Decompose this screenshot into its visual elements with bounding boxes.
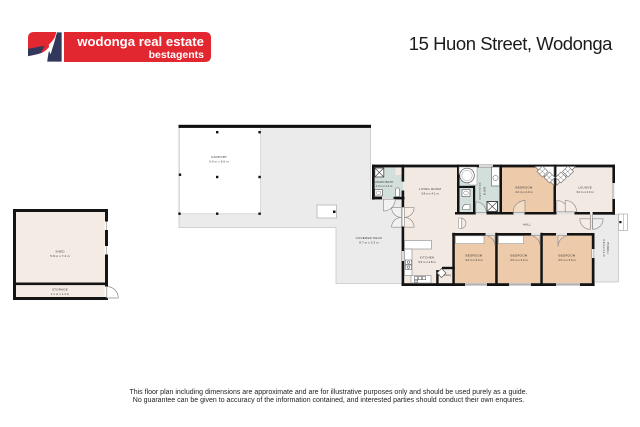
svg-text:3.8 m x 4.1 m: 3.8 m x 4.1 m bbox=[421, 192, 439, 196]
svg-text:3.0 m x 3.5 m: 3.0 m x 3.5 m bbox=[558, 258, 576, 262]
svg-text:COVERED DECK: COVERED DECK bbox=[356, 236, 383, 240]
svg-text:LOUNGE: LOUNGE bbox=[578, 186, 592, 190]
svg-text:BEDROOM: BEDROOM bbox=[559, 254, 576, 258]
svg-text:LNDRY/BATH: LNDRY/BATH bbox=[375, 180, 394, 184]
svg-text:BEDROOM: BEDROOM bbox=[466, 254, 483, 258]
svg-text:6.0 m x 5.6 m: 6.0 m x 5.6 m bbox=[209, 160, 229, 164]
svg-text:1.9 m x 2.8 m: 1.9 m x 2.8 m bbox=[478, 182, 482, 200]
svg-text:HALL: HALL bbox=[523, 222, 531, 226]
svg-text:BEDROOM: BEDROOM bbox=[511, 254, 528, 258]
svg-text:CARPORT: CARPORT bbox=[211, 155, 227, 159]
svg-text:3.0 m x 4.0 m: 3.0 m x 4.0 m bbox=[515, 190, 533, 194]
svg-text:KITCHEN: KITCHEN bbox=[420, 256, 435, 260]
svg-text:5.8 m x 7.4 m: 5.8 m x 7.4 m bbox=[50, 254, 70, 258]
svg-text:Pantry: Pantry bbox=[444, 274, 452, 277]
svg-text:SHED: SHED bbox=[55, 250, 65, 254]
svg-text:3.0 m x 3.3 m: 3.0 m x 3.3 m bbox=[465, 258, 483, 262]
svg-text:2.0 m x 2.4 m: 2.0 m x 2.4 m bbox=[376, 184, 393, 188]
svg-text:BEDROOM: BEDROOM bbox=[516, 186, 533, 190]
svg-text:3.5 m x 2.8 m: 3.5 m x 2.8 m bbox=[418, 260, 436, 264]
svg-text:0.9 m x 2.1 m: 0.9 m x 2.1 m bbox=[602, 240, 606, 258]
svg-text:3.0 m x 3.3 m: 3.0 m x 3.3 m bbox=[510, 258, 528, 262]
svg-text:8.7 m x 3.3 m: 8.7 m x 3.3 m bbox=[359, 241, 379, 245]
svg-text:1.1 m x 1.4 m: 1.1 m x 1.4 m bbox=[51, 292, 70, 296]
svg-text:LIVING ROOM: LIVING ROOM bbox=[419, 187, 442, 191]
svg-text:3.0 m x 4.0 m: 3.0 m x 4.0 m bbox=[576, 190, 594, 194]
